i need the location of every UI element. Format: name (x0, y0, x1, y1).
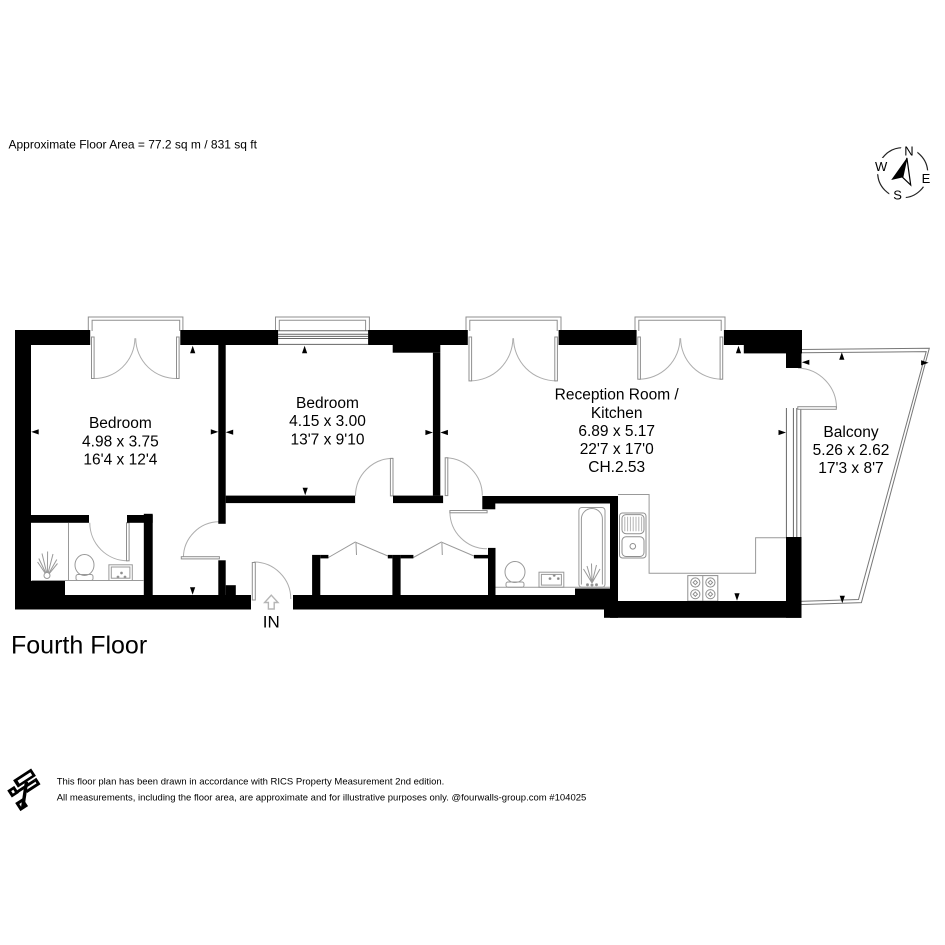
svg-text:Balcony: Balcony (823, 424, 878, 441)
svg-text:Bedroom: Bedroom (296, 395, 359, 412)
svg-text:S: S (893, 188, 902, 203)
svg-text:5.26 x 2.62: 5.26 x 2.62 (813, 442, 890, 459)
svg-text:16'4 x 12'4: 16'4 x 12'4 (83, 451, 157, 468)
svg-text:N: N (904, 144, 913, 159)
svg-text:IN: IN (263, 613, 280, 632)
svg-text:Kitchen: Kitchen (591, 405, 643, 422)
svg-text:4.98 x 3.75: 4.98 x 3.75 (82, 433, 159, 450)
svg-text:17'3 x 8'7: 17'3 x 8'7 (818, 460, 883, 477)
svg-text:Bedroom: Bedroom (89, 415, 152, 432)
svg-text:All measurements, including th: All measurements, including the floor ar… (57, 793, 587, 804)
svg-text:4.15 x 3.00: 4.15 x 3.00 (289, 413, 366, 430)
svg-text:13'7 x 9'10: 13'7 x 9'10 (290, 431, 364, 448)
svg-text:E: E (922, 171, 931, 186)
svg-text:W: W (875, 159, 888, 174)
svg-text:Reception Room /: Reception Room / (555, 387, 680, 404)
svg-text:6.89 x 5.17: 6.89 x 5.17 (578, 423, 655, 440)
svg-text:22'7 x 17'0: 22'7 x 17'0 (580, 441, 654, 458)
svg-text:This floor plan has been drawn: This floor plan has been drawn in accord… (57, 777, 445, 788)
svg-text:CH.2.53: CH.2.53 (588, 459, 645, 476)
svg-text:Approximate Floor Area = 77.2: Approximate Floor Area = 77.2 sq m / 831… (9, 138, 258, 152)
svg-text:Fourth Floor: Fourth Floor (11, 631, 147, 659)
